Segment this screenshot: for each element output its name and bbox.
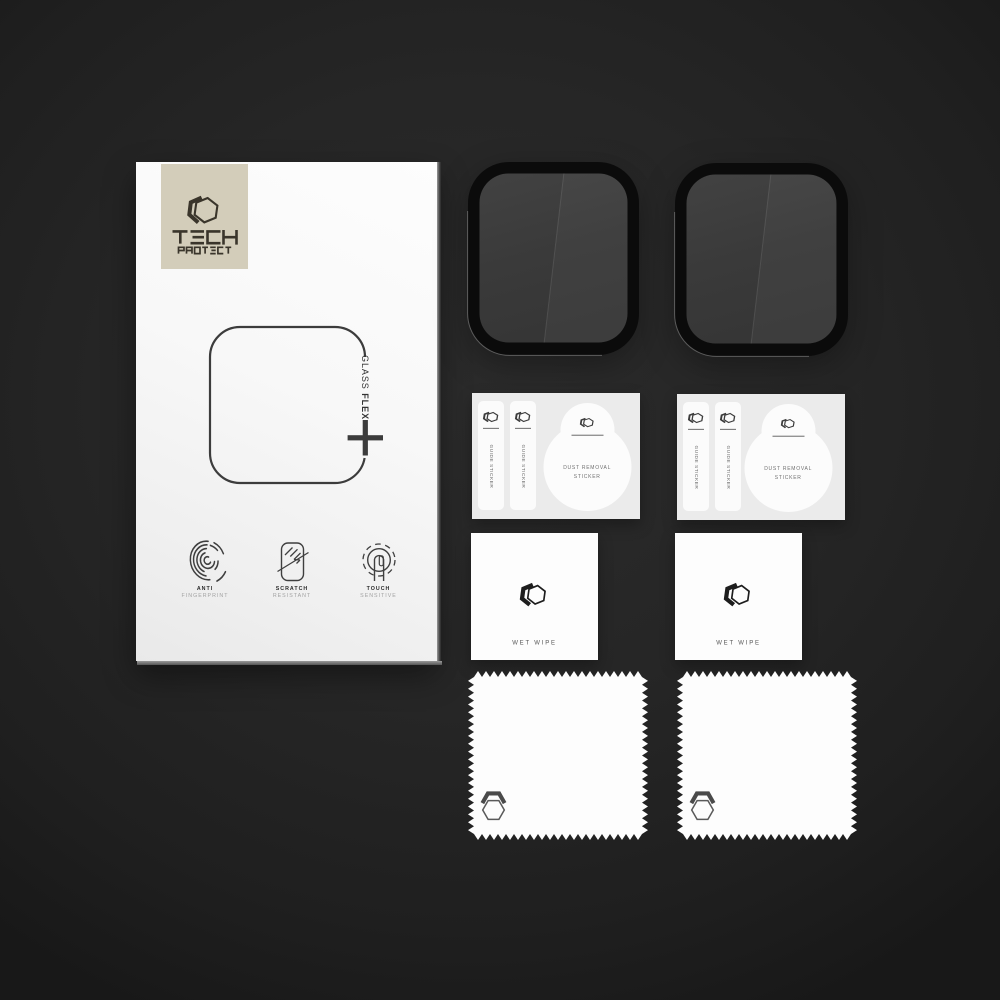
svg-text:WET WIPE: WET WIPE xyxy=(512,641,557,647)
svg-text:GUIDE STICKER: GUIDE STICKER xyxy=(725,446,731,490)
svg-text:RESISTANT: RESISTANT xyxy=(273,593,311,599)
svg-text:FINGERPRINT: FINGERPRINT xyxy=(182,593,229,599)
svg-text:GUIDE STICKER: GUIDE STICKER xyxy=(488,445,494,489)
svg-text:GUIDE STICKER: GUIDE STICKER xyxy=(520,445,526,489)
svg-text:DUST REMOVAL: DUST REMOVAL xyxy=(764,466,812,472)
svg-text:STICKER: STICKER xyxy=(775,475,802,481)
svg-text:STICKER: STICKER xyxy=(574,474,601,480)
svg-text:TOUCH: TOUCH xyxy=(367,586,391,592)
svg-text:SENSITIVE: SENSITIVE xyxy=(360,593,397,599)
svg-text:ANTI: ANTI xyxy=(197,586,213,592)
svg-text:WET WIPE: WET WIPE xyxy=(716,641,761,647)
svg-text:SCRATCH: SCRATCH xyxy=(276,586,309,592)
svg-text:GUIDE STICKER: GUIDE STICKER xyxy=(693,446,699,490)
svg-text:DUST REMOVAL: DUST REMOVAL xyxy=(563,465,611,471)
svg-text:GLASS FLEX: GLASS FLEX xyxy=(360,355,370,420)
